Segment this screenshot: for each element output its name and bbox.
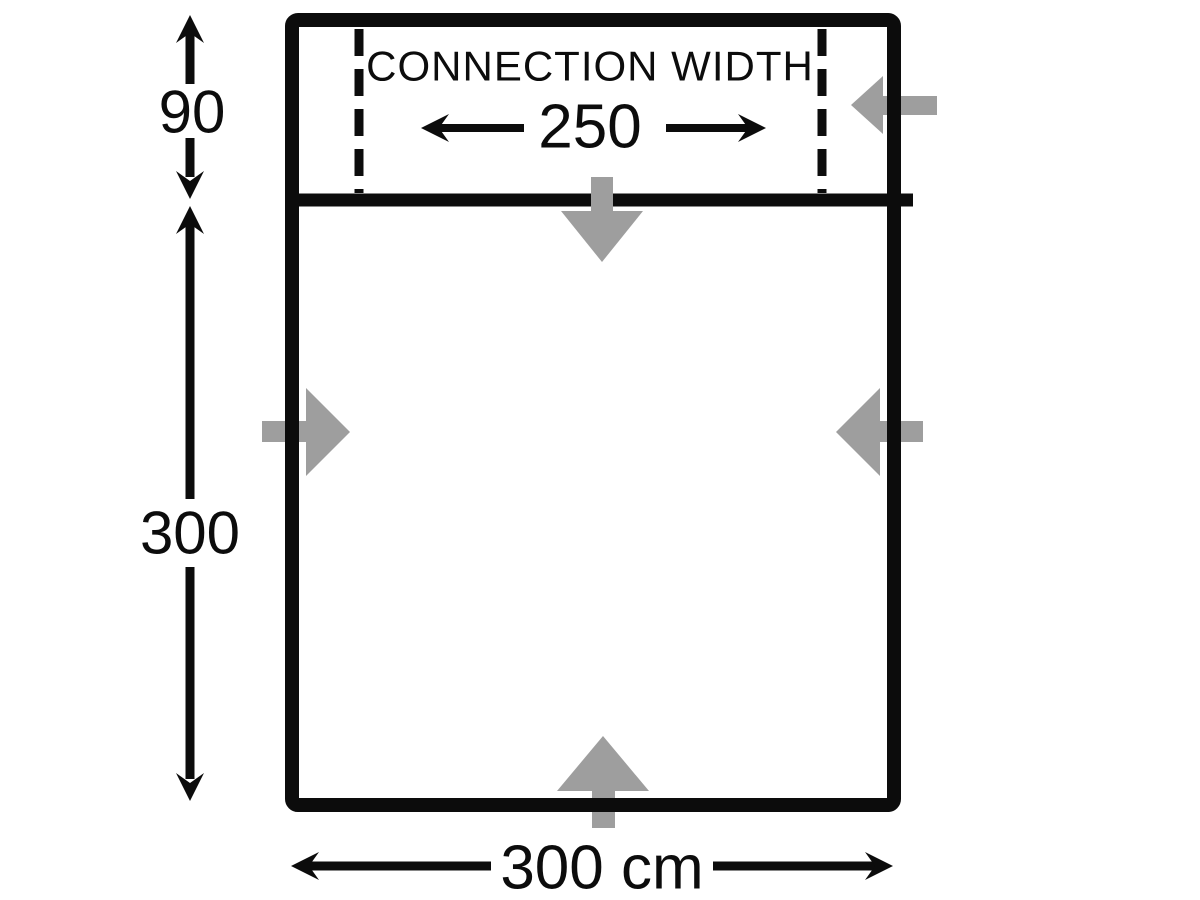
connection-down-arrow-icon bbox=[561, 177, 643, 262]
left-entrance-arrow-head bbox=[306, 388, 350, 476]
awning-floorplan-diagram: CONNECTION WIDTH 250 90 300 bbox=[0, 0, 1200, 900]
connection-depth-value: 90 bbox=[159, 79, 226, 146]
right-entrance-arrow-icon bbox=[836, 388, 923, 476]
room-depth-value: 300 bbox=[140, 500, 240, 567]
left-entrance-arrow-icon bbox=[262, 388, 350, 476]
bottom-entrance-arrow-icon bbox=[557, 736, 649, 828]
total-width-value: 300 cm bbox=[500, 834, 703, 900]
floorplan-svg: CONNECTION WIDTH 250 90 300 bbox=[0, 0, 1200, 900]
connection-side-arrow-head bbox=[851, 76, 883, 134]
right-entrance-arrow-head bbox=[836, 388, 880, 476]
connection-width-label: CONNECTION WIDTH bbox=[366, 43, 814, 90]
connection-width-value: 250 bbox=[538, 93, 641, 162]
connection-down-arrow-head bbox=[561, 211, 643, 262]
